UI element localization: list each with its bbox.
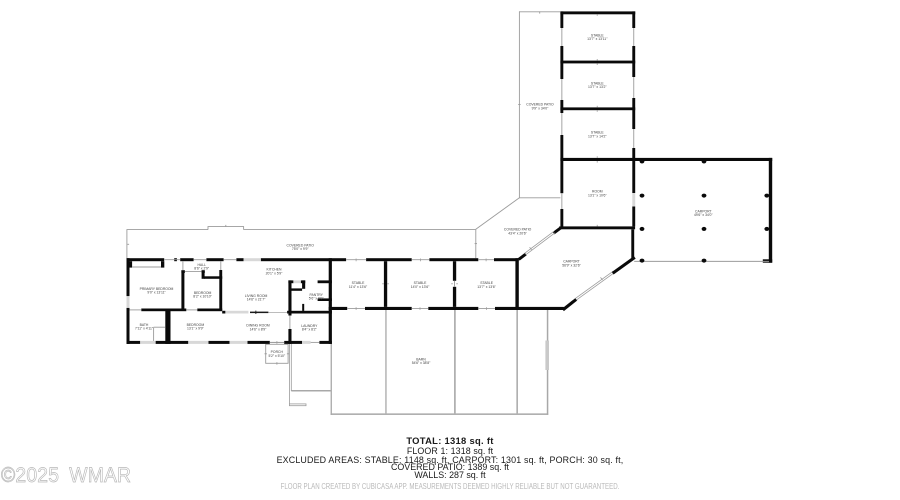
svg-text:5'6" x 8'0": 5'6" x 8'0" (309, 297, 325, 301)
svg-text:56'9" x 32'6": 56'9" x 32'6" (562, 263, 581, 267)
svg-text:75'0" x 9'9": 75'0" x 9'9" (292, 247, 310, 251)
svg-text:49'6" x 34'0": 49'6" x 34'0" (694, 213, 713, 217)
svg-text:8'4" x 8'2": 8'4" x 8'2" (302, 328, 318, 332)
svg-text:14'0" x 13'6": 14'0" x 13'6" (411, 285, 430, 289)
svg-text:54'6" x 38'8": 54'6" x 38'8" (412, 361, 431, 365)
svg-text:13'7" x 14'2": 13'7" x 14'2" (588, 134, 607, 138)
svg-text:20'1" x 5'9": 20'1" x 5'9" (266, 271, 284, 275)
svg-text:13'1" x 10'6": 13'1" x 10'6" (588, 193, 607, 197)
svg-text:13'1" x 9'9": 13'1" x 9'9" (187, 326, 205, 330)
svg-text:7'11" x 4'11": 7'11" x 4'11" (135, 327, 154, 331)
svg-text:5'2" x 5'10": 5'2" x 5'10" (268, 354, 286, 358)
svg-text:14'6" x 21'7": 14'6" x 21'7" (247, 297, 266, 301)
svg-text:11'4" x 13'6": 11'4" x 13'6" (349, 285, 368, 289)
svg-text:13'7" x 13'6": 13'7" x 13'6" (477, 285, 496, 289)
svg-text:9'9" x 34'0": 9'9" x 34'0" (532, 106, 550, 110)
svg-text:43'4" x 20'6": 43'4" x 20'6" (508, 231, 527, 235)
svg-text:8'6" x 2'9": 8'6" x 2'9" (194, 266, 210, 270)
svg-text:8'2" x 10'10": 8'2" x 10'10" (193, 295, 212, 299)
svg-text:9'0" x 13'11": 9'0" x 13'11" (147, 290, 166, 294)
svg-text:13'7" x 13'2": 13'7" x 13'2" (588, 85, 607, 89)
svg-text:13'7" x 13'11": 13'7" x 13'11" (587, 37, 608, 41)
svg-text:14'6" x 8'9": 14'6" x 8'9" (250, 327, 268, 331)
